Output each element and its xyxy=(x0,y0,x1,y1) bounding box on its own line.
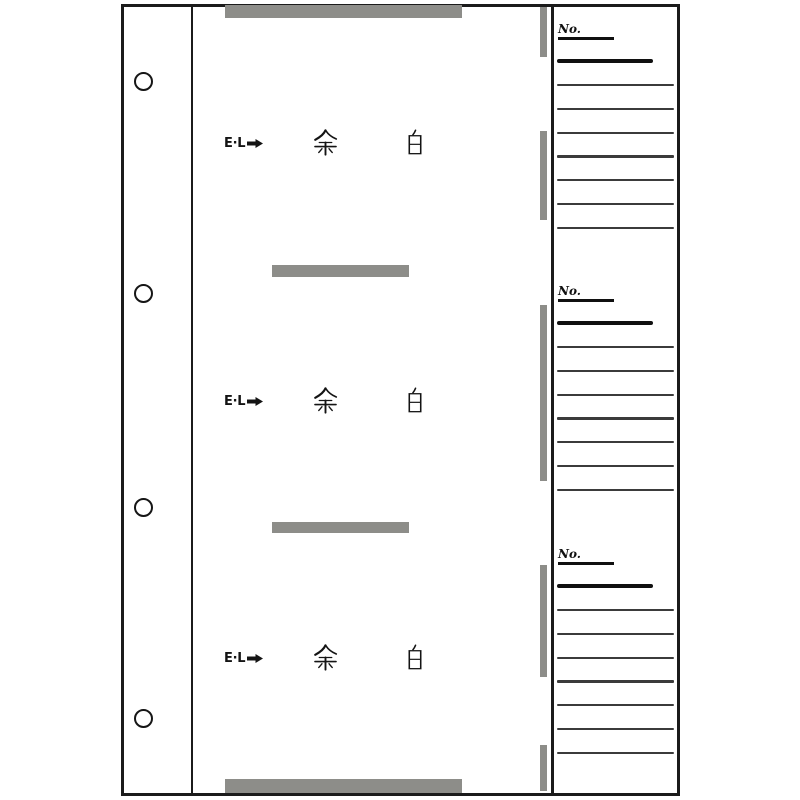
glue-tape-bar xyxy=(225,779,462,793)
no-label: No. xyxy=(558,22,581,36)
kanji-haku-icon xyxy=(402,387,428,419)
right-arrow-icon xyxy=(247,139,263,148)
binder-margin-separator-line xyxy=(191,4,193,796)
margin-label-row: E·L xyxy=(220,644,465,672)
memo-section: No. xyxy=(554,287,678,527)
el-marker: E·L xyxy=(224,395,263,408)
el-marker: E·L xyxy=(224,137,263,150)
binding-tick xyxy=(540,745,547,791)
ruled-line xyxy=(557,155,674,157)
heading-rule-line xyxy=(557,59,653,63)
kanji-haku-icon xyxy=(402,129,428,161)
glue-tape-bar xyxy=(272,265,409,277)
ruled-line xyxy=(557,704,674,706)
binding-tick xyxy=(540,565,547,677)
ruled-line xyxy=(557,370,674,372)
ruled-line xyxy=(557,441,674,443)
binding-tick xyxy=(540,305,547,481)
heading-rule-line xyxy=(557,584,653,588)
kanji-yo-icon xyxy=(312,644,339,676)
memo-section: No. xyxy=(554,25,678,265)
ruled-line xyxy=(557,657,674,659)
ruled-line xyxy=(557,417,674,419)
kanji-haku-icon xyxy=(402,644,428,676)
punch-hole xyxy=(134,284,153,303)
ruled-line xyxy=(557,346,674,348)
glue-tape-bar xyxy=(272,522,409,533)
ruled-line xyxy=(557,84,674,86)
right-arrow-icon xyxy=(247,654,263,663)
ruled-line xyxy=(557,179,674,181)
glue-tape-bar xyxy=(225,5,462,18)
ruled-line xyxy=(557,203,674,205)
no-underline xyxy=(558,299,614,302)
memo-column: No. No. No. xyxy=(554,0,678,800)
kanji-yo-icon xyxy=(312,129,339,161)
el-marker-label: E·L xyxy=(224,652,245,665)
el-marker: E·L xyxy=(224,652,263,665)
ruled-line xyxy=(557,609,674,611)
margin-label-row: E·L xyxy=(220,129,465,157)
ruled-line xyxy=(557,465,674,467)
punch-hole xyxy=(134,709,153,728)
ruled-line xyxy=(557,227,674,229)
ruled-line xyxy=(557,728,674,730)
ruled-line xyxy=(557,680,674,682)
no-label: No. xyxy=(558,284,581,298)
el-marker-label: E·L xyxy=(224,137,245,150)
binding-tick xyxy=(540,7,547,57)
memo-section: No. xyxy=(554,550,678,790)
ruled-line xyxy=(557,752,674,754)
ruled-line xyxy=(557,633,674,635)
no-underline xyxy=(558,37,614,40)
punch-hole xyxy=(134,498,153,517)
el-marker-label: E·L xyxy=(224,395,245,408)
ruled-line xyxy=(557,489,674,491)
kanji-yo-icon xyxy=(312,387,339,419)
ruled-line xyxy=(557,394,674,396)
ruled-line xyxy=(557,108,674,110)
no-underline xyxy=(558,562,614,565)
no-label: No. xyxy=(558,547,581,561)
binding-tick xyxy=(540,131,547,220)
ruled-line xyxy=(557,132,674,134)
heading-rule-line xyxy=(557,321,653,325)
right-arrow-icon xyxy=(247,397,263,406)
margin-label-row: E·L xyxy=(220,387,465,415)
punch-hole xyxy=(134,72,153,91)
